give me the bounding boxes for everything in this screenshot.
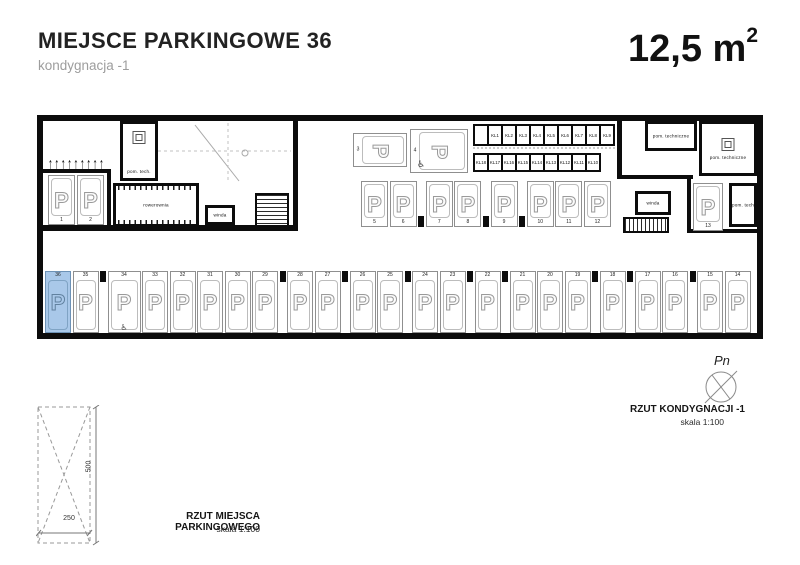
parking-symbol: P: [74, 292, 98, 314]
locker-label: KL10: [588, 160, 598, 165]
space-number: 3: [355, 147, 361, 154]
parking-space-14: 14P: [725, 271, 751, 333]
bike-racks: ↑↑↑↑↑↑↑↑↑: [48, 139, 104, 171]
parking-space-33: 33P: [142, 271, 168, 333]
rack-arrow-icon: ↑: [54, 158, 59, 174]
parking-symbol: P: [528, 194, 553, 216]
column: [467, 271, 473, 282]
locker-label: KL8: [589, 133, 597, 138]
plan-scale: skala 1:100: [600, 417, 724, 427]
parking-symbol: P: [253, 292, 277, 314]
parking-symbol: P: [171, 292, 195, 314]
parking-space-22: 22P: [475, 271, 501, 333]
column: [627, 271, 633, 282]
space-number: 20: [538, 272, 562, 279]
wall: [617, 121, 622, 179]
room-label: winda: [638, 201, 668, 206]
column: [100, 271, 106, 282]
plan-caption: RZUT KONDYGNACJI -1: [600, 404, 745, 415]
locker-label: KL12: [560, 160, 570, 165]
parking-symbol: P: [316, 292, 340, 314]
parking-space-35: 35P: [73, 271, 99, 333]
locker-label: KL11: [574, 160, 584, 165]
parking-symbol: P: [378, 292, 402, 314]
room-winda-right: winda: [635, 191, 671, 215]
column: [592, 271, 598, 282]
column: [418, 216, 424, 227]
space-number: 16: [663, 272, 687, 279]
detail-scale: skala 1:100: [100, 524, 260, 534]
parking-space-9: 9P: [491, 181, 518, 227]
parking-symbol: P: [441, 292, 465, 314]
locker-label: KL3: [519, 133, 527, 138]
parking-space-17: 17P: [635, 271, 661, 333]
parking-symbol: P: [601, 292, 625, 314]
parking-space-18: 18P: [600, 271, 626, 333]
parking-symbol: P: [492, 194, 517, 216]
room-label: pom. tech.: [123, 169, 155, 174]
rack-arrow-icon: ↑: [93, 158, 98, 174]
space-number: 1: [49, 217, 74, 224]
parking-space-28: 28P: [287, 271, 313, 333]
parking-symbol: P: [698, 292, 722, 314]
space-number: 10: [528, 219, 553, 226]
parking-space-4: 4 P ♿: [410, 129, 468, 173]
space-number: 6: [391, 219, 416, 226]
locker-label: KL6: [561, 133, 569, 138]
rack-arrow-icon: ↑: [80, 158, 85, 174]
parking-symbol: P: [362, 194, 387, 216]
wall: [687, 179, 691, 233]
locker-KL10: KL10: [585, 153, 601, 172]
parking-space-36: 36P: [45, 271, 71, 333]
stairs-right: [623, 217, 669, 233]
space-number: 15: [698, 272, 722, 279]
parking-space-34: 34P♿: [108, 271, 141, 333]
parking-symbol: P: [351, 292, 375, 314]
floor-plan: ↑↑↑↑↑↑↑↑↑ pom. tech. rowerownia winda po…: [37, 115, 763, 339]
parking-space-26: 26P: [350, 271, 376, 333]
locker-label: KL18: [476, 160, 486, 165]
parking-space-16: 16P: [662, 271, 688, 333]
locker-label: KL4: [533, 133, 541, 138]
area-label: 12,5 m2: [628, 28, 758, 71]
parking-symbol: P: [511, 292, 535, 314]
parking-symbol: P: [413, 292, 437, 314]
parking-space-detail-drawing: [36, 405, 106, 553]
space-number: 32: [171, 272, 195, 279]
locker-label: KL2: [505, 133, 513, 138]
room-label: pom. techniczne: [648, 134, 694, 139]
parking-space-29: 29P: [252, 271, 278, 333]
column: [483, 216, 489, 227]
detail-height-dimension: 500: [86, 456, 93, 478]
space-number: 34: [109, 272, 140, 279]
area-value: 12,5 m: [628, 28, 746, 70]
parking-symbol: P: [78, 190, 103, 212]
parking-symbol: P: [428, 124, 450, 180]
parking-space-11: 11P: [555, 181, 582, 227]
space-number: 21: [511, 272, 535, 279]
equipment-icon: [133, 131, 146, 144]
space-number: 29: [253, 272, 277, 279]
locker-label: KL17: [490, 160, 500, 165]
rack-arrow-icon: ↑: [86, 158, 91, 174]
parking-symbol: P: [585, 194, 610, 216]
north-compass-icon: [702, 368, 740, 406]
bike-rack-icon: [118, 220, 194, 224]
parking-symbol: P: [663, 292, 687, 314]
space-number: 24: [413, 272, 437, 279]
space-number: 19: [566, 272, 590, 279]
bike-rack-icon: [118, 186, 194, 190]
column: [502, 271, 508, 282]
parking-space-19: 19P: [565, 271, 591, 333]
rack-arrow-icon: ↑: [74, 158, 79, 174]
room-pom-tech-left: pom. tech.: [120, 121, 158, 181]
space-number: 25: [378, 272, 402, 279]
rack-arrow-icon: ↑: [61, 158, 66, 174]
locker-label: KL9: [603, 133, 611, 138]
parking-space-7: 7P: [426, 181, 453, 227]
room-label: winda: [208, 213, 232, 218]
parking-symbol: P: [726, 292, 750, 314]
space-number: 12: [585, 219, 610, 226]
column: [690, 271, 696, 282]
space-number: 18: [601, 272, 625, 279]
locker-row-bottom: KL18KL17KL16KL15KL14KL13KL12KL11KL10: [473, 153, 601, 172]
locker-label: KL1: [491, 133, 499, 138]
parking-space-24: 24P: [412, 271, 438, 333]
parking-space-32: 32P: [170, 271, 196, 333]
room-label: pom. tech.: [732, 203, 754, 208]
room-pom-techniczne-small: pom. techniczne: [645, 121, 697, 151]
wall: [107, 169, 111, 227]
space-number: 35: [74, 272, 98, 279]
space-number: 31: [198, 272, 222, 279]
space-number: 9: [492, 219, 517, 226]
parking-space-27: 27P: [315, 271, 341, 333]
space-number: 36: [46, 272, 70, 279]
space-number: 27: [316, 272, 340, 279]
parking-symbol: P: [566, 292, 590, 314]
space-number: 17: [636, 272, 660, 279]
column: [405, 271, 411, 282]
parking-row-left: 1P2P: [48, 175, 104, 225]
parking-symbol: P: [636, 292, 660, 314]
parking-space-6: 6P: [390, 181, 417, 227]
parking-space-30: 30P: [225, 271, 251, 333]
stairs-left: [255, 193, 289, 227]
parking-space-5: 5P: [361, 181, 388, 227]
locker-KL9: KL9: [599, 124, 615, 146]
north-label: Pn: [714, 353, 730, 368]
locker-label: KL13: [546, 160, 556, 165]
parking-space-13: 13 P: [693, 183, 723, 231]
parking-symbol: P: [226, 292, 250, 314]
parking-row-bottom: 36P35P34P♿33P32P31P30P29P28P27P26P25P24P…: [45, 271, 757, 333]
detail-width-dimension: 250: [52, 515, 86, 522]
wheelchair-icon: ♿: [417, 160, 425, 170]
space-number: 23: [441, 272, 465, 279]
column: [342, 271, 348, 282]
parking-space-15: 15P: [697, 271, 723, 333]
room-pom-tech-right: pom. tech.: [729, 183, 757, 227]
parking-space-1: 1P: [48, 175, 75, 225]
parking-symbol: P: [49, 190, 74, 212]
rack-arrow-icon: ↑: [48, 158, 53, 174]
parking-symbol: P: [556, 194, 581, 216]
locker-label: KL14: [532, 160, 542, 165]
parking-space-20: 20P: [537, 271, 563, 333]
parking-symbol: P: [288, 292, 312, 314]
space-number: 26: [351, 272, 375, 279]
parking-symbol: P: [369, 125, 391, 177]
parking-symbol: P: [538, 292, 562, 314]
parking-symbol: P: [46, 292, 70, 314]
parking-symbol: P: [109, 292, 140, 314]
space-number: 4: [412, 148, 418, 155]
parking-symbol: P: [455, 194, 480, 216]
parking-symbol: P: [427, 194, 452, 216]
space-number: 14: [726, 272, 750, 279]
room-label: rowerownia: [116, 203, 196, 208]
space-number: 22: [476, 272, 500, 279]
parking-symbol: P: [476, 292, 500, 314]
page: MIEJSCE PARKINGOWE 36 kondygnacja -1 12,…: [0, 0, 800, 565]
rack-arrow-icon: ↑: [67, 158, 72, 174]
parking-space-25: 25P: [377, 271, 403, 333]
parking-space-31: 31P: [197, 271, 223, 333]
locker-label: KL5: [547, 133, 555, 138]
parking-symbol: P: [694, 197, 722, 219]
room-rowerownia: rowerownia: [113, 183, 199, 227]
locker-row-top: KL1KL2KL3KL4KL5KL6KL7KL8KL9: [473, 124, 615, 146]
space-number: 33: [143, 272, 167, 279]
room-label: pom. techniczne: [702, 155, 754, 160]
wheelchair-icon: ♿: [109, 323, 140, 332]
room-pom-techniczne-large: pom. techniczne: [699, 121, 757, 176]
space-number: 28: [288, 272, 312, 279]
space-number: 11: [556, 219, 581, 226]
rack-arrow-icon: ↑: [99, 158, 104, 174]
page-subtitle: kondygnacja -1: [38, 58, 130, 73]
locker-label: KL7: [575, 133, 583, 138]
space-number: 7: [427, 219, 452, 226]
wall: [617, 175, 693, 179]
room-winda-left: winda: [205, 205, 235, 225]
locker-label: KL15: [518, 160, 528, 165]
parking-row-top: 5P6P7P8P9P10P11P12P: [361, 181, 611, 227]
parking-symbol: P: [143, 292, 167, 314]
space-number: 5: [362, 219, 387, 226]
space-number: 2: [78, 217, 103, 224]
wall: [293, 121, 298, 231]
parking-space-21: 21P: [510, 271, 536, 333]
parking-space-12: 12P: [584, 181, 611, 227]
column: [280, 271, 286, 282]
parking-space-3: 3 P: [353, 133, 407, 167]
page-title: MIEJSCE PARKINGOWE 36: [38, 28, 332, 54]
space-number: 13: [694, 223, 722, 230]
space-number: 8: [455, 219, 480, 226]
parking-space-2: 2P: [77, 175, 104, 225]
parking-space-8: 8P: [454, 181, 481, 227]
space-number: 30: [226, 272, 250, 279]
parking-symbol: P: [198, 292, 222, 314]
locker-label: KL16: [504, 160, 514, 165]
parking-space-23: 23P: [440, 271, 466, 333]
parking-symbol: P: [391, 194, 416, 216]
area-superscript: 2: [746, 24, 758, 47]
parking-space-10: 10P: [527, 181, 554, 227]
equipment-icon: [722, 138, 735, 151]
column: [519, 216, 525, 227]
